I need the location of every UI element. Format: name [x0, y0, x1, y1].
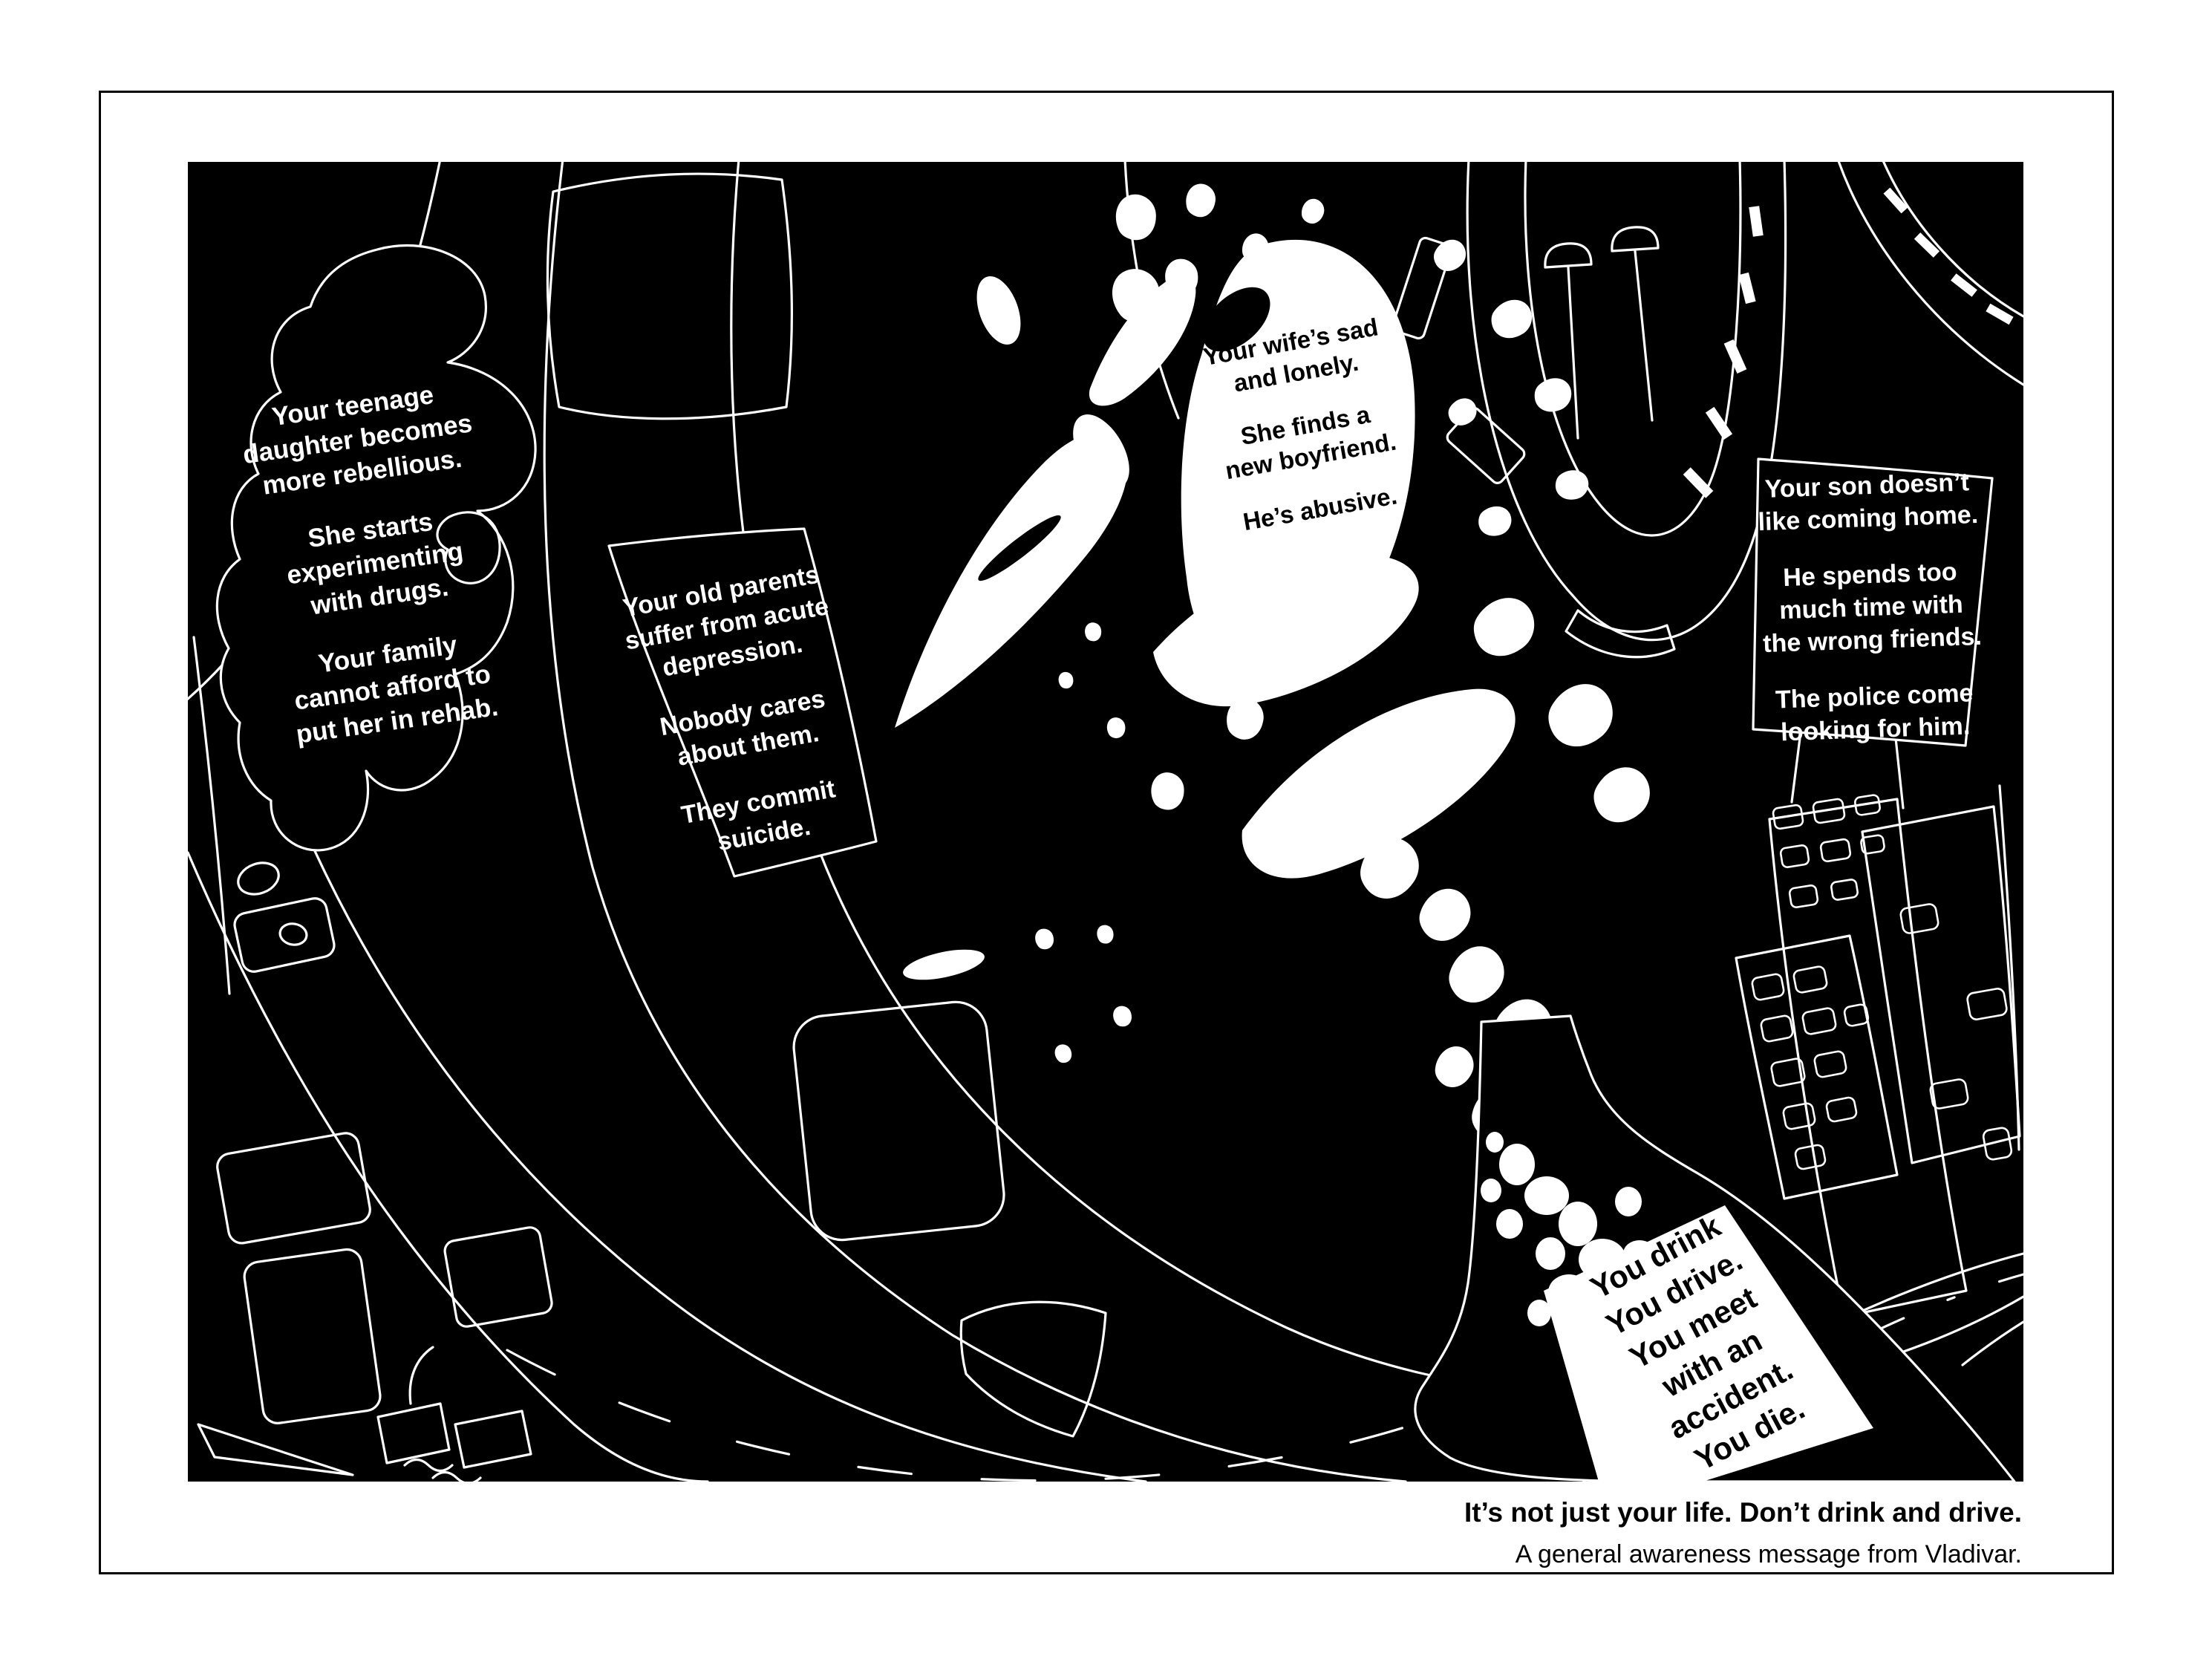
footer-subline: A general awareness message from Vladiva…	[1131, 1540, 2022, 1569]
city-block	[215, 1131, 372, 1245]
callout-son: Your son doesn’tlike coming home. He spe…	[1726, 464, 2017, 750]
ad-page: Your teenagedaughter becomesmore rebelli…	[0, 0, 2212, 1665]
city-block-top	[547, 174, 792, 419]
callout-paragraph: Nobody caresabout them.	[608, 674, 883, 784]
city-block	[443, 1226, 553, 1329]
city-block	[243, 1248, 382, 1425]
callout-paragraph: The police comelooking for him.	[1733, 675, 2017, 750]
corner-road	[1838, 162, 2023, 385]
callout-paragraph: Your son doesn’tlike coming home.	[1726, 464, 2010, 539]
footer-headline: It’s not just your life. Don’t drink and…	[1131, 1497, 2022, 1528]
callout-paragraph: She startsexperimentingwith drugs.	[214, 492, 537, 634]
footer-caption: It’s not just your life. Don’t drink and…	[1131, 1497, 2022, 1569]
callout-parents: Your old parentssuffer from acutedepress…	[587, 553, 898, 874]
houses-cluster	[378, 1347, 531, 1482]
callout-daughter: Your teenagedaughter becomesmore rebelli…	[196, 368, 554, 759]
street-lamp	[1612, 227, 1658, 420]
city-block	[961, 1302, 1106, 1436]
callout-paragraph: He spends toomuch time withthe wrong fri…	[1729, 553, 2014, 661]
callout-paragraph: She finds anew boyfriend.	[1178, 388, 1438, 494]
city-block	[791, 999, 1007, 1243]
city-block	[232, 896, 336, 974]
small-blob	[234, 858, 283, 900]
road-wedge	[198, 1424, 353, 1475]
lane-dashes	[1683, 206, 1764, 498]
small-blob	[278, 922, 308, 947]
